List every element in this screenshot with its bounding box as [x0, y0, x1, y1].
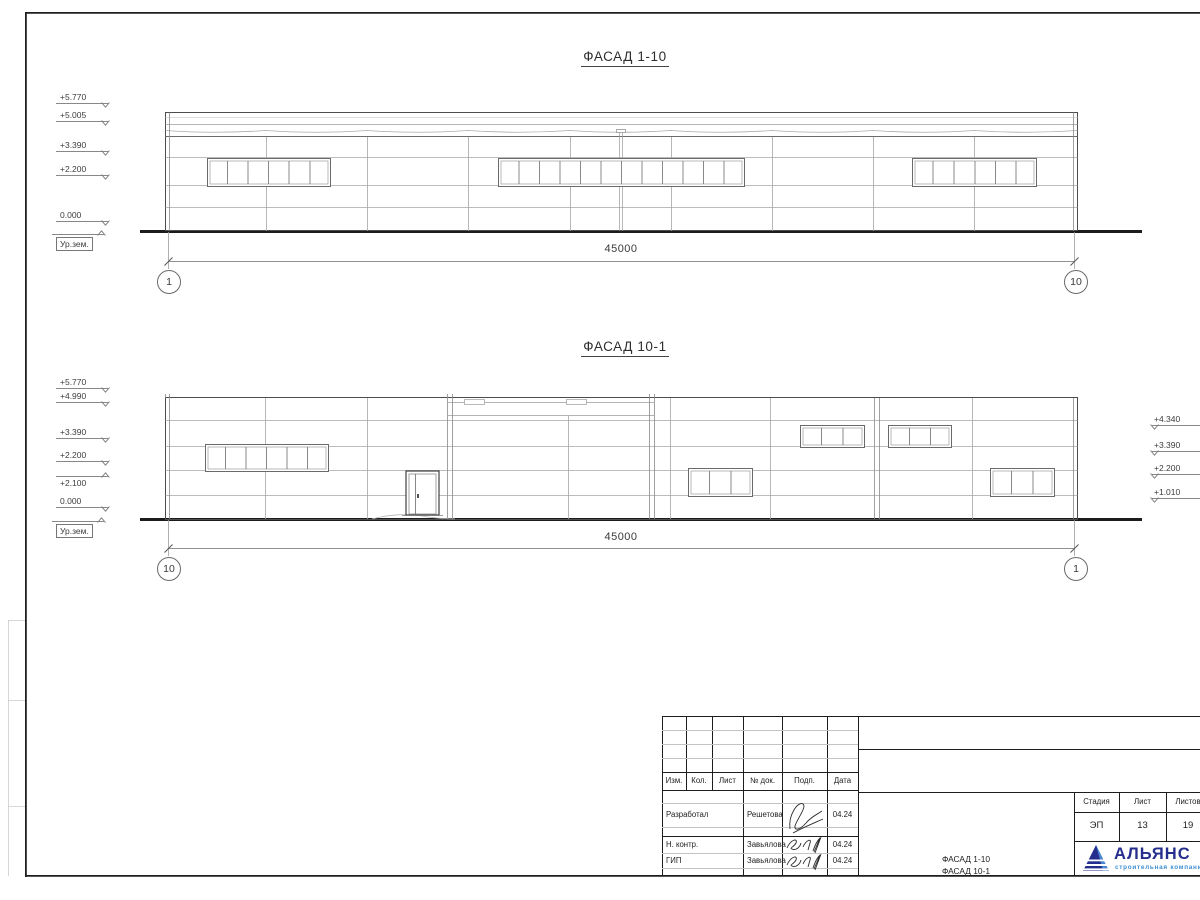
tb-col-kol: Кол.: [686, 776, 712, 786]
tb-doc-title-line2: ФАСАД 10-1: [858, 865, 1074, 877]
tb-row-role: Н. контр.: [666, 840, 742, 850]
elevation-mark: 0.000: [56, 496, 108, 508]
tb-row-name: Завьялова: [747, 840, 783, 850]
signature-icon: [784, 795, 826, 835]
drawing-sheet: ФАСАД 1-10 ФАСАД 10-1 45000 45000 1 10 1…: [0, 0, 1200, 900]
elevation-tick-icon: [101, 120, 110, 126]
window-band: [208, 159, 331, 187]
tb-col-podp: Подп.: [782, 776, 827, 786]
signature-icon: [784, 852, 826, 871]
tb-col-data: Дата: [827, 776, 858, 786]
column-lines: [266, 398, 973, 519]
elevation-tick-icon: [1150, 497, 1159, 503]
company-logo-pyramid-icon: [1082, 844, 1110, 872]
tb-row-role: ГИП: [666, 856, 742, 866]
elevation-mark: +2.200: [1152, 463, 1200, 475]
elevation-mark: +3.390: [56, 140, 108, 152]
elevation-tick-icon: [101, 472, 110, 478]
company-logo-name: АЛЬЯНС: [1114, 845, 1191, 864]
tb-row-date: 04.24: [827, 810, 858, 820]
window: [889, 426, 952, 448]
company-logo-tagline: строительная компания: [1115, 864, 1200, 871]
tb-col-list: Лист: [712, 776, 743, 786]
window-band: [499, 159, 745, 187]
tb-sheets-label: Листов: [1166, 797, 1200, 807]
elevation-tick-icon: [1150, 450, 1159, 456]
elevation-mark: +2.200: [56, 164, 108, 176]
axis-bubble: 10: [1064, 270, 1088, 294]
elevation-tick-icon: [101, 460, 110, 466]
tb-sheet-value: 13: [1119, 821, 1166, 831]
elevation-mark: +1.010: [1152, 487, 1200, 499]
elevation-mark: +4.340: [1152, 414, 1200, 426]
elevation-tick-icon: [1150, 424, 1159, 430]
tb-doc-title-line1: ФАСАД 1-10: [858, 853, 1074, 865]
tb-row-name: Завьялова: [747, 856, 783, 866]
elevation-tick-icon: [101, 506, 110, 512]
elevation-tick-icon: [101, 437, 110, 443]
axis-bubble: 10: [157, 557, 181, 581]
tb-row-name: Решетова: [747, 810, 783, 820]
axis-bubble: 1: [1064, 557, 1088, 581]
elevation-mark: +3.390: [56, 427, 108, 439]
entrance-door: [372, 471, 455, 519]
ground-level-mark: Ур.зем.: [52, 234, 104, 251]
elevation-mark: +5.005: [56, 110, 108, 122]
elevation-tick-icon: [101, 102, 110, 108]
ground-level-mark: Ур.зем.: [52, 521, 104, 538]
dimension-value: 45000: [586, 531, 656, 543]
elevation-mark: +5.770: [56, 92, 108, 104]
tb-row-role: Разработал: [666, 810, 742, 820]
tb-sheets-value: 19: [1166, 821, 1200, 831]
elevation-tick-icon: [101, 220, 110, 226]
facade2-title: ФАСАД 10-1: [540, 339, 710, 357]
tb-row-date: 04.24: [827, 856, 858, 866]
window-band: [913, 159, 1037, 187]
canopy-band: [448, 400, 654, 416]
window: [689, 469, 753, 497]
elevation-mark: +4.990: [56, 391, 108, 403]
window-band: [206, 445, 329, 472]
axis-bubble: 1: [157, 270, 181, 294]
tb-stage-value: ЭП: [1074, 821, 1119, 831]
elevation-tick-icon: [101, 401, 110, 407]
facade1-title: ФАСАД 1-10: [540, 49, 710, 67]
elevation-tick-icon: [97, 517, 106, 523]
dimension-value: 45000: [586, 243, 656, 255]
tb-col-izm: Изм.: [662, 776, 686, 786]
elevation-tick-icon: [1150, 473, 1159, 479]
tb-row-date: 04.24: [827, 840, 858, 850]
title-block: Изм. Кол. Лист № док. Подп. Дата Разрабо…: [662, 716, 1200, 876]
tb-stage-label: Стадия: [1074, 797, 1119, 807]
elevation-mark: +2.100: [56, 476, 108, 488]
window: [801, 426, 865, 448]
tb-col-ndok: № док.: [743, 776, 782, 786]
elevation-mark: 0.000: [56, 210, 108, 222]
elevation-tick-icon: [101, 150, 110, 156]
elevation-tick-icon: [101, 174, 110, 180]
tb-sheet-label: Лист: [1119, 797, 1166, 807]
elevation-mark: +3.390: [1152, 440, 1200, 452]
elevation-mark: +2.200: [56, 450, 108, 462]
elevation-tick-icon: [97, 230, 106, 236]
elevation-mark: +5.770: [56, 377, 108, 389]
window: [991, 469, 1055, 497]
